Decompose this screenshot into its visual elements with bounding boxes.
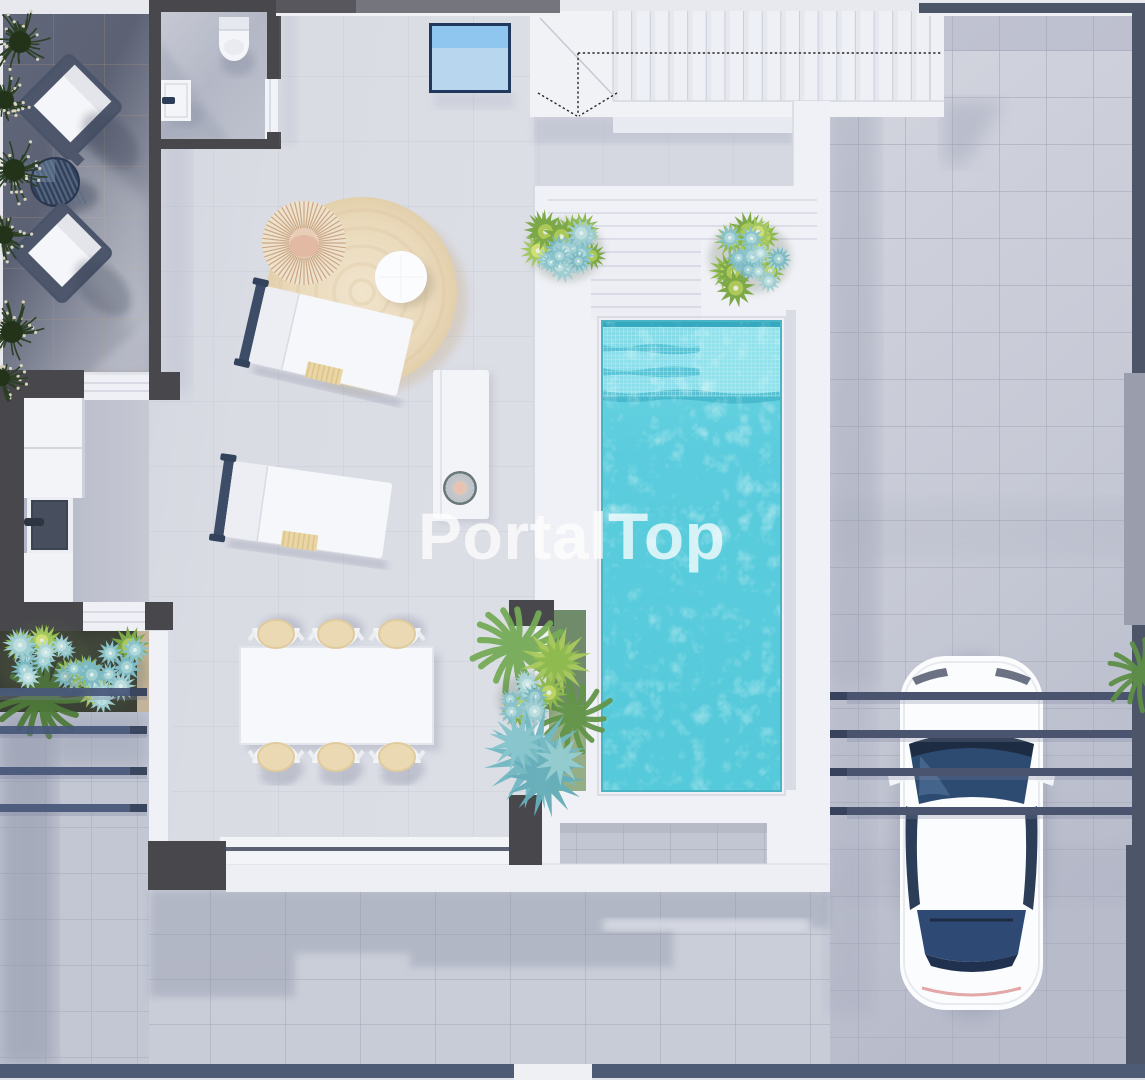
svg-text:PortalTop: PortalTop [418, 499, 725, 573]
